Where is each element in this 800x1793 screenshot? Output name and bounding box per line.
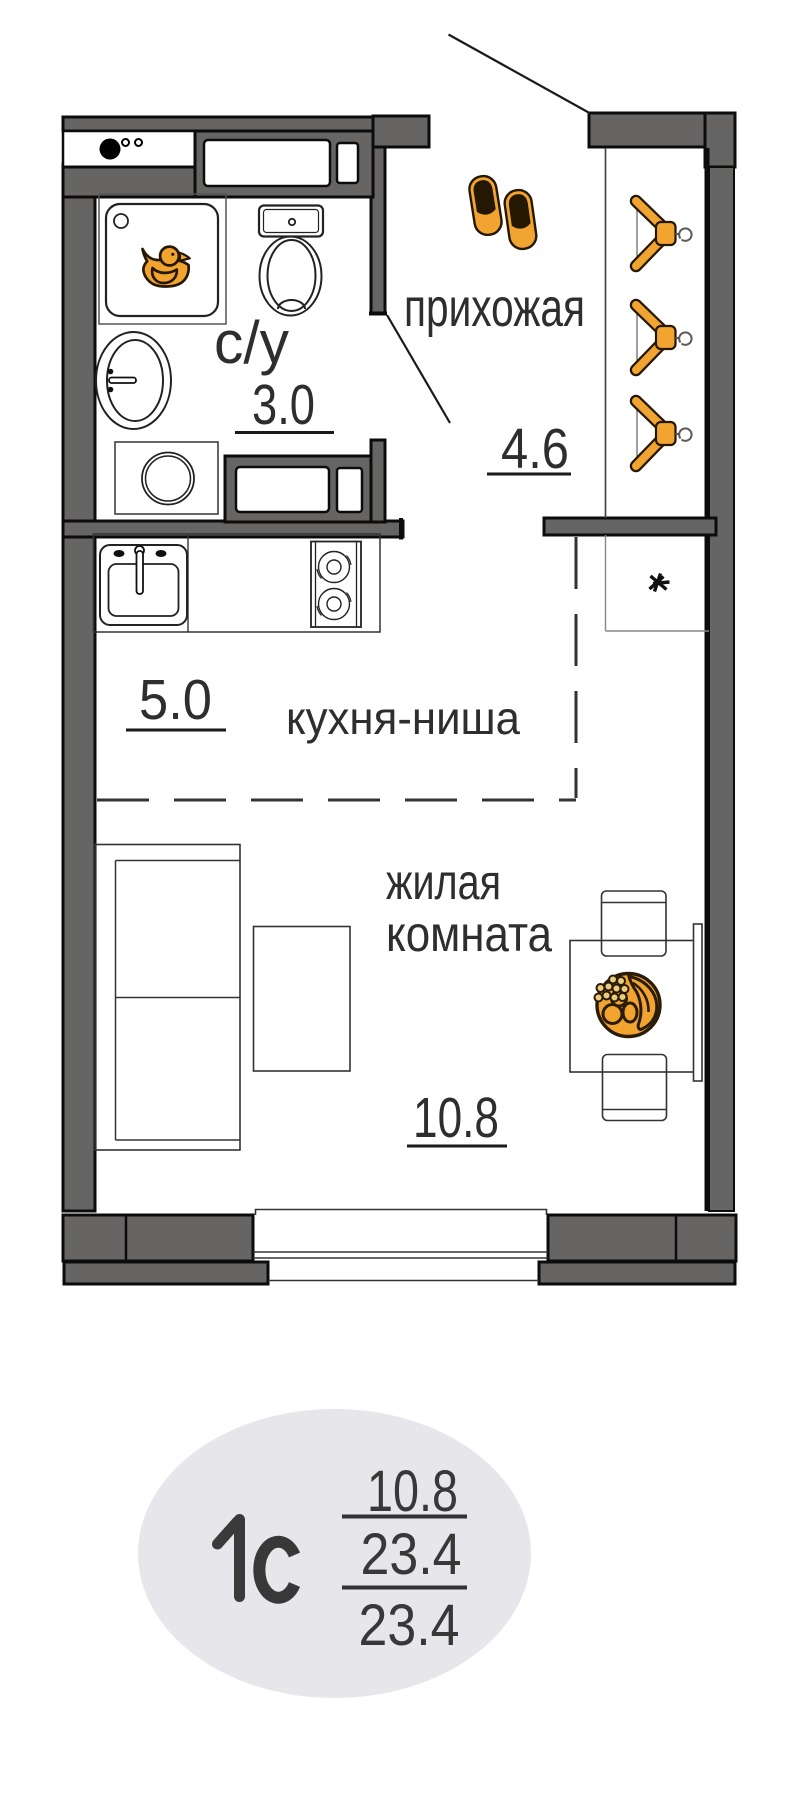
svg-text:кухня-ниша: кухня-ниша: [286, 692, 520, 744]
svg-text:комната: комната: [386, 906, 552, 962]
svg-text:5.0: 5.0: [139, 668, 212, 732]
svg-text:жилая: жилая: [386, 854, 501, 910]
svg-text:4.6: 4.6: [501, 417, 569, 481]
svg-text:10.8: 10.8: [413, 1086, 499, 1150]
svg-text:23.4: 23.4: [361, 1522, 462, 1587]
svg-text:3.0: 3.0: [252, 373, 315, 437]
svg-text:23.4: 23.4: [359, 1593, 460, 1658]
svg-text:прихожая: прихожая: [404, 278, 585, 338]
svg-text:с/у: с/у: [214, 309, 289, 376]
svg-text:10.8: 10.8: [367, 1459, 458, 1524]
